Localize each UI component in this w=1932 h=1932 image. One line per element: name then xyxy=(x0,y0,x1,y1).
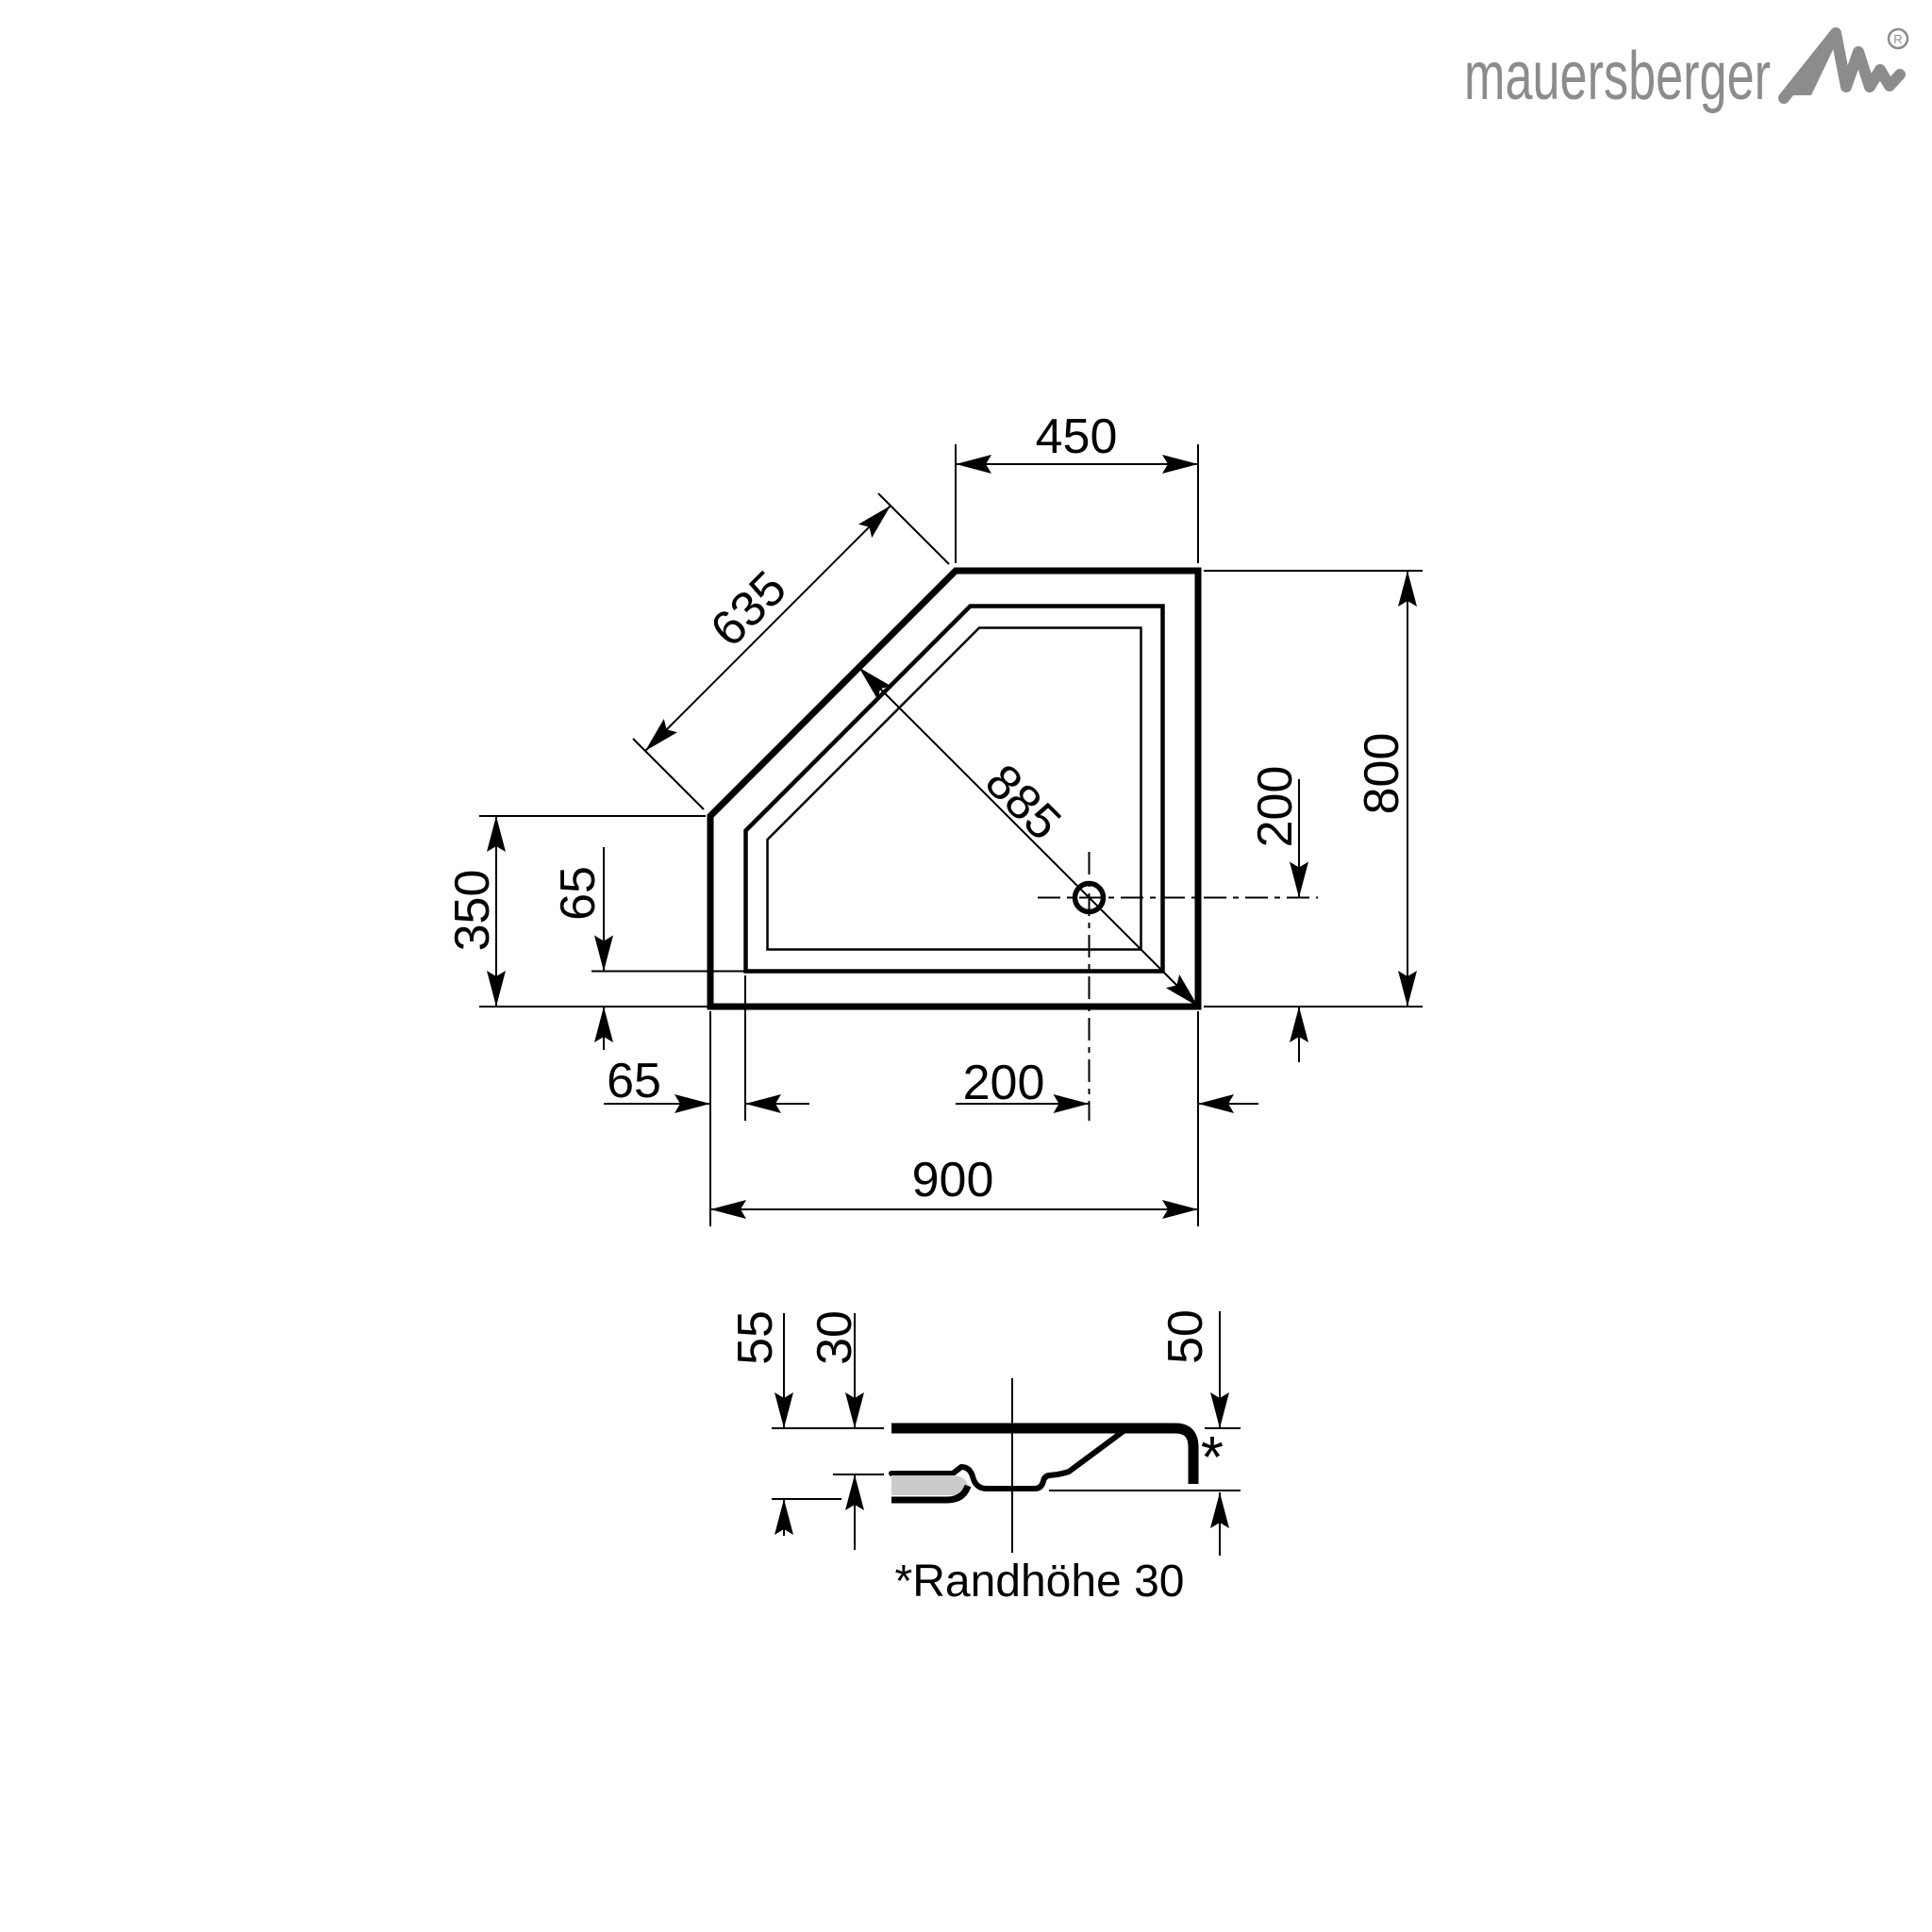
dim-label-885: 885 xyxy=(974,755,1071,851)
section-floor-fill xyxy=(891,1475,968,1495)
dim-label-635: 635 xyxy=(701,561,797,658)
dim-drain-to-right: 200 xyxy=(956,1056,1258,1113)
dim-label-50: 50 xyxy=(1158,1309,1213,1364)
brand-name: mauersberger xyxy=(1464,39,1771,114)
dim-top-width: 450 xyxy=(956,409,1198,563)
dim-label-450: 450 xyxy=(1036,409,1118,464)
dim-label-350: 350 xyxy=(445,870,500,952)
section-view: 55 30 50 * *Randhöhe 30 xyxy=(728,1309,1241,1607)
mountain-logo-peak-fill xyxy=(1789,34,1840,95)
dim-label-200-right: 200 xyxy=(1248,766,1303,848)
tray-floor-outline xyxy=(768,628,1141,950)
dim-right-height: 800 xyxy=(1204,571,1423,1007)
dim-top-to-floor: 30 xyxy=(808,1310,864,1550)
dim-label-200-bottom: 200 xyxy=(963,1056,1045,1110)
drawing-page: mauersberger R 450 6 xyxy=(0,0,1932,1932)
dim-drain-to-bottom: 200 xyxy=(1248,766,1308,1062)
tray-outer-outline xyxy=(710,571,1198,1007)
tray-rim-inner-outline xyxy=(746,607,1163,972)
dim-total-width: 900 xyxy=(710,1153,1198,1219)
dim-total-height: 55 xyxy=(728,1310,793,1536)
dim-rim-width-bottom: 65 xyxy=(604,1054,809,1113)
dim-label-30: 30 xyxy=(808,1310,862,1365)
dim-label-65-bottom: 65 xyxy=(607,1054,661,1108)
dim-label-55: 55 xyxy=(728,1310,783,1365)
dim-label-65-left: 65 xyxy=(551,866,606,921)
dim-label-900: 900 xyxy=(912,1153,994,1207)
dim-rim-width-left: 65 xyxy=(551,847,746,1050)
dim-chamfer-edge: 635 xyxy=(633,493,949,809)
footnote-randhoehe: *Randhöhe 30 xyxy=(895,1557,1185,1607)
dim-label-800: 800 xyxy=(1355,733,1409,815)
asterisk-marker: * xyxy=(1201,1425,1224,1491)
technical-drawing: mauersberger R 450 6 xyxy=(0,0,1932,1932)
dim-cross-diagonal: 885 xyxy=(859,668,1199,1008)
registered-mark-letter: R xyxy=(1893,32,1902,46)
plan-view: 450 635 885 800 xyxy=(445,409,1423,1226)
brand-logo: mauersberger R xyxy=(1464,29,1907,114)
